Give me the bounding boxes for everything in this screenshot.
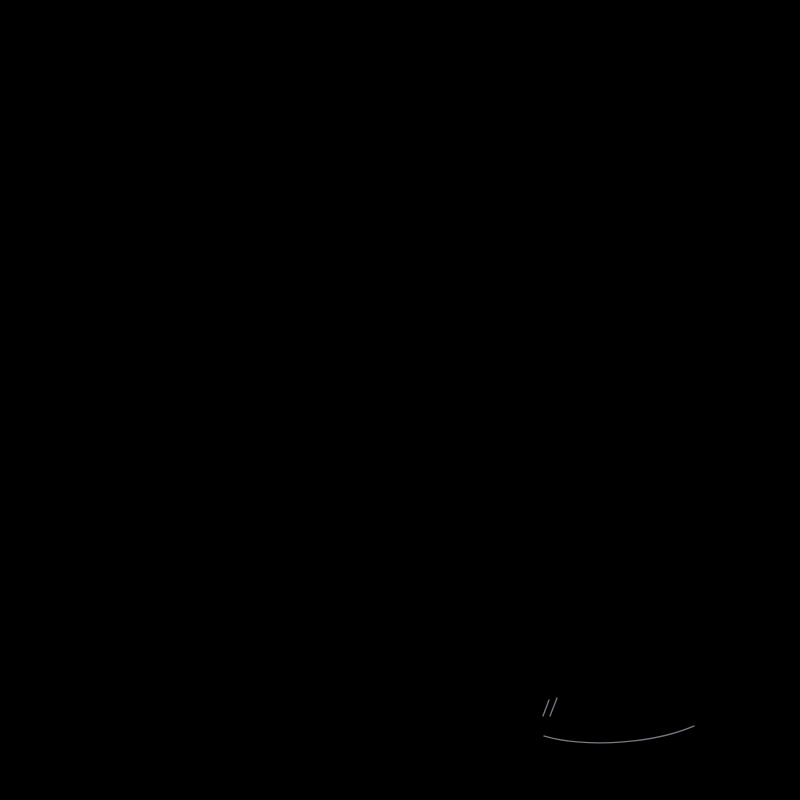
print-photo [0,0,800,800]
painting [0,0,800,800]
paper-background [0,0,800,800]
